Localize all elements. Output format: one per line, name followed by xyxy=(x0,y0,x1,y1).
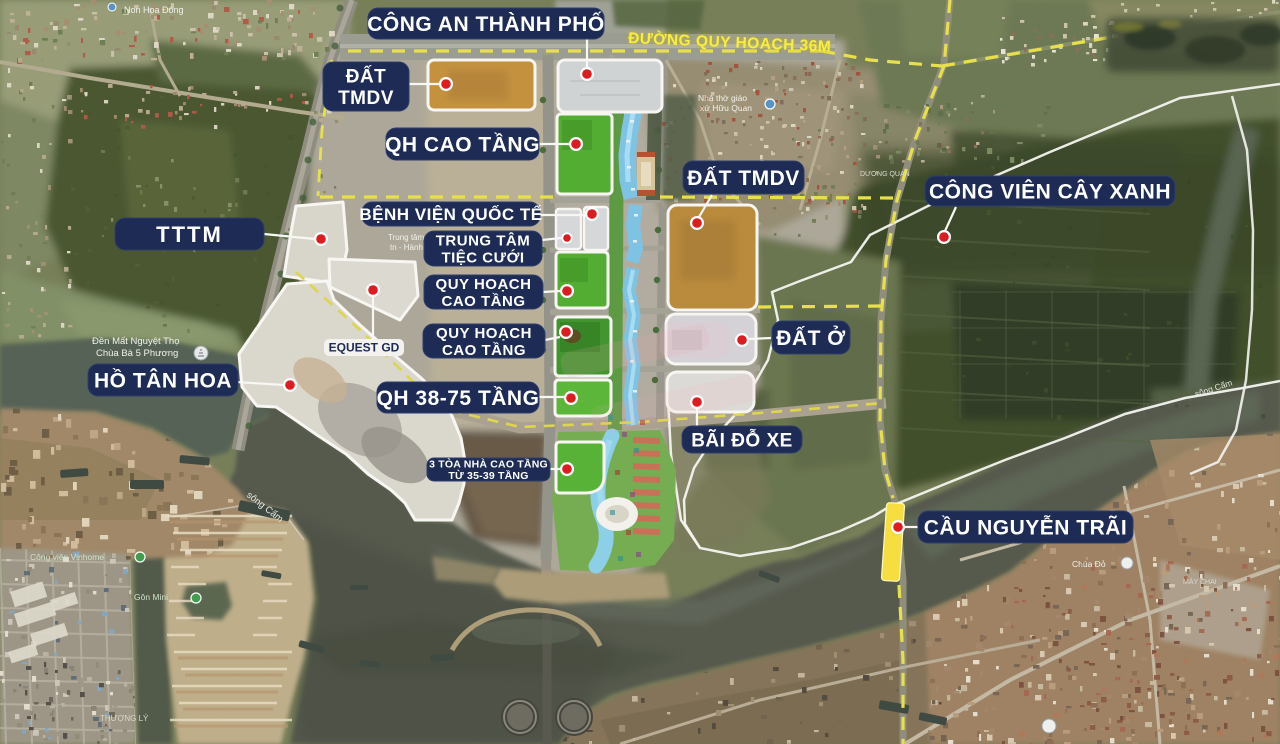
svg-text:THƯỢNG LÝ: THƯỢNG LÝ xyxy=(100,714,149,723)
svg-text:Non Hoa Đông: Non Hoa Đông xyxy=(124,5,184,15)
svg-text:TTTM: TTTM xyxy=(156,222,223,247)
svg-text:BÃI ĐỖ XE: BÃI ĐỖ XE xyxy=(691,429,793,451)
svg-text:CẦU NGUYỄN TRÃI: CẦU NGUYỄN TRÃI xyxy=(924,517,1128,540)
svg-text:xứ Hữu Quan: xứ Hữu Quan xyxy=(700,103,752,113)
svg-text:BỆNH VIỆN QUỐC TẾ: BỆNH VIỆN QUỐC TẾ xyxy=(359,204,542,224)
svg-text:HỒ TÂN HOA: HỒ TÂN HOA xyxy=(94,369,232,393)
svg-text:CAO TẦNG: CAO TẦNG xyxy=(442,293,526,310)
svg-text:TMDV: TMDV xyxy=(338,88,394,109)
svg-text:TRUNG TÂM: TRUNG TÂM xyxy=(436,232,531,250)
svg-text:Đền Mất Nguyệt Thọ: Đền Mất Nguyệt Thọ xyxy=(92,336,179,347)
svg-text:CÔNG VIÊN CÂY XANH: CÔNG VIÊN CÂY XANH xyxy=(929,180,1171,204)
svg-text:Chùa Bà 5 Phương: Chùa Bà 5 Phương xyxy=(96,348,178,359)
svg-text:Chùa Đỏ: Chùa Đỏ xyxy=(1072,559,1106,569)
svg-text:MÁY CHAI: MÁY CHAI xyxy=(1183,577,1217,586)
svg-text:3 TÒA NHÀ CAO TẦNG: 3 TÒA NHÀ CAO TẦNG xyxy=(429,457,548,470)
svg-text:ĐẤT TMDV: ĐẤT TMDV xyxy=(687,167,800,190)
svg-text:Gôn Mini: Gôn Mini xyxy=(134,592,168,602)
svg-text:DƯƠNG QUAN: DƯƠNG QUAN xyxy=(860,171,910,178)
svg-text:CÔNG AN THÀNH PHỐ: CÔNG AN THÀNH PHỐ xyxy=(367,12,605,36)
svg-text:Công viên Vinhome: Công viên Vinhome xyxy=(30,552,104,562)
svg-text:ĐẤT Ở: ĐẤT Ở xyxy=(776,326,845,350)
svg-text:TIỆC CƯỚI: TIỆC CƯỚI xyxy=(441,248,524,266)
svg-text:QUY HOẠCH: QUY HOẠCH xyxy=(436,325,532,342)
svg-text:QUY HOẠCH: QUY HOẠCH xyxy=(436,276,532,293)
svg-text:tn - Hành: tn - Hành xyxy=(390,243,423,252)
svg-text:ĐẤT: ĐẤT xyxy=(346,66,387,88)
svg-text:QH 38-75 TẦNG: QH 38-75 TẦNG xyxy=(377,387,540,410)
svg-text:Nhà thờ giáo: Nhà thờ giáo xyxy=(698,93,747,103)
svg-text:CAO TẦNG: CAO TẦNG xyxy=(442,342,526,359)
svg-text:TỪ 35-39 TẦNG: TỪ 35-39 TẦNG xyxy=(448,469,528,482)
svg-text:EQUEST GD: EQUEST GD xyxy=(329,341,400,355)
svg-text:Trung tâm: Trung tâm xyxy=(388,233,424,242)
svg-text:QH CAO TẦNG: QH CAO TẦNG xyxy=(385,134,540,157)
